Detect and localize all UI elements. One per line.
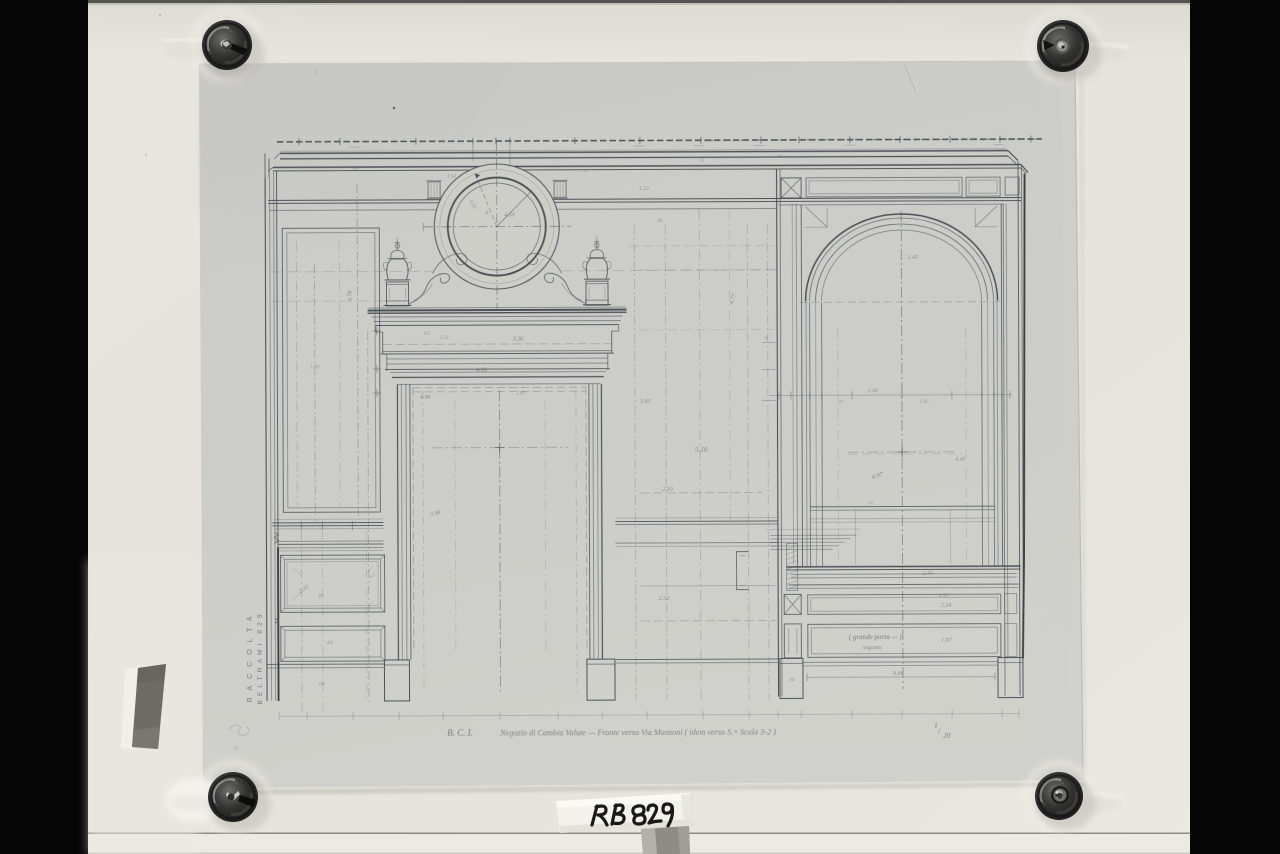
svg-text:4.45: 4.45 <box>955 456 966 463</box>
svg-text:20: 20 <box>943 732 951 740</box>
svg-text:64: 64 <box>319 680 325 687</box>
svg-text:50: 50 <box>868 500 873 505</box>
svg-text:2.65: 2.65 <box>516 390 526 396</box>
svg-text:30: 30 <box>788 677 795 683</box>
svg-text:2.34: 2.34 <box>941 602 952 609</box>
svg-text:16: 16 <box>699 158 704 163</box>
svg-text:4.98: 4.98 <box>420 394 431 401</box>
svg-text:1.43: 1.43 <box>907 254 918 261</box>
svg-text:4.50: 4.50 <box>504 211 515 218</box>
svg-text:4.5: 4.5 <box>424 332 431 337</box>
svg-text:4.95: 4.95 <box>476 367 488 374</box>
svg-text:( grande porta — ): ( grande porta — ) <box>849 633 903 641</box>
svg-text:1.97: 1.97 <box>941 638 953 644</box>
svg-text:1.53: 1.53 <box>639 186 649 192</box>
svg-text:R: R <box>484 212 488 217</box>
svg-text:3.26: 3.26 <box>512 336 524 342</box>
svg-text:9.66: 9.66 <box>893 671 904 677</box>
svg-text:2.10: 2.10 <box>662 487 673 493</box>
svg-text:2.32: 2.32 <box>659 596 670 602</box>
svg-text:25: 25 <box>583 168 588 173</box>
svg-text:42: 42 <box>657 217 663 224</box>
svg-text:5.20: 5.20 <box>440 336 449 341</box>
svg-text:5.10: 5.10 <box>695 446 708 454</box>
svg-text:10: 10 <box>777 153 782 158</box>
svg-text:Negozio di Cambia Valute — F: Negozio di Cambia Valute — Fronte verso … <box>499 727 776 737</box>
svg-text:2.05: 2.05 <box>920 400 929 405</box>
svg-text:1.40: 1.40 <box>868 387 878 394</box>
svg-text:34: 34 <box>764 336 769 341</box>
svg-text:3.93: 3.93 <box>639 399 651 405</box>
svg-text:30: 30 <box>838 400 844 405</box>
svg-text:44: 44 <box>327 639 333 646</box>
svg-text:1.30: 1.30 <box>310 364 320 370</box>
svg-text:1: 1 <box>934 722 938 730</box>
svg-text:B. C. I.: B. C. I. <box>447 728 473 738</box>
svg-text:4.78: 4.78 <box>347 291 354 302</box>
svg-text:92: 92 <box>233 746 239 752</box>
svg-text:9.99: 9.99 <box>939 593 949 599</box>
svg-text:1.54: 1.54 <box>447 175 456 180</box>
svg-text:81: 81 <box>319 593 325 599</box>
svg-text:sagoma: sagoma <box>863 645 882 651</box>
svg-text:2.45: 2.45 <box>923 570 934 577</box>
svg-text:2.0: 2.0 <box>351 167 358 173</box>
